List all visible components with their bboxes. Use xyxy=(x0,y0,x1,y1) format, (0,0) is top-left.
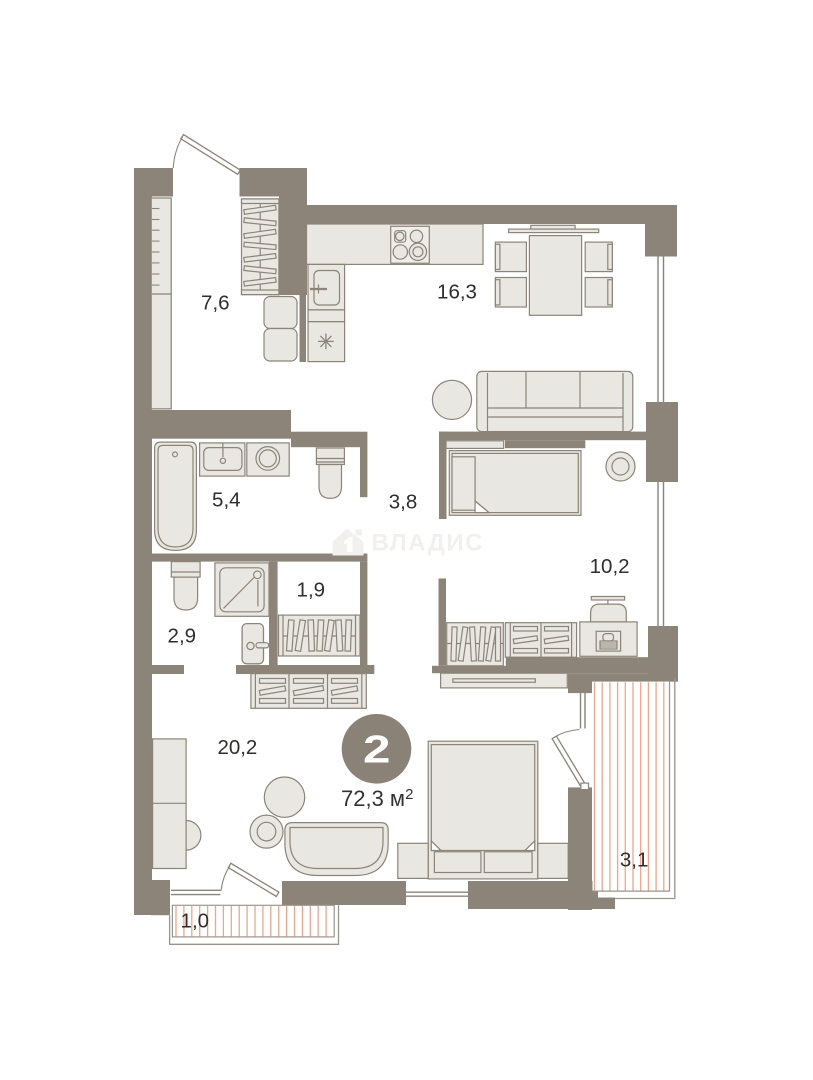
svg-text:2,9: 2,9 xyxy=(168,625,197,648)
svg-text:10,2: 10,2 xyxy=(590,555,630,578)
svg-text:16,3: 16,3 xyxy=(437,281,477,304)
svg-text:20,2: 20,2 xyxy=(217,736,257,759)
svg-text:ВЛАДИС: ВЛАДИС xyxy=(372,530,484,557)
svg-text:2: 2 xyxy=(363,729,391,772)
svg-text:72,3 м2: 72,3 м2 xyxy=(341,786,413,811)
svg-text:1,9: 1,9 xyxy=(297,579,326,602)
svg-text:7,6: 7,6 xyxy=(201,292,230,315)
svg-text:3,1: 3,1 xyxy=(620,849,649,872)
svg-text:5,4: 5,4 xyxy=(212,489,241,512)
svg-text:1,0: 1,0 xyxy=(181,910,210,933)
svg-text:3,8: 3,8 xyxy=(389,491,418,514)
